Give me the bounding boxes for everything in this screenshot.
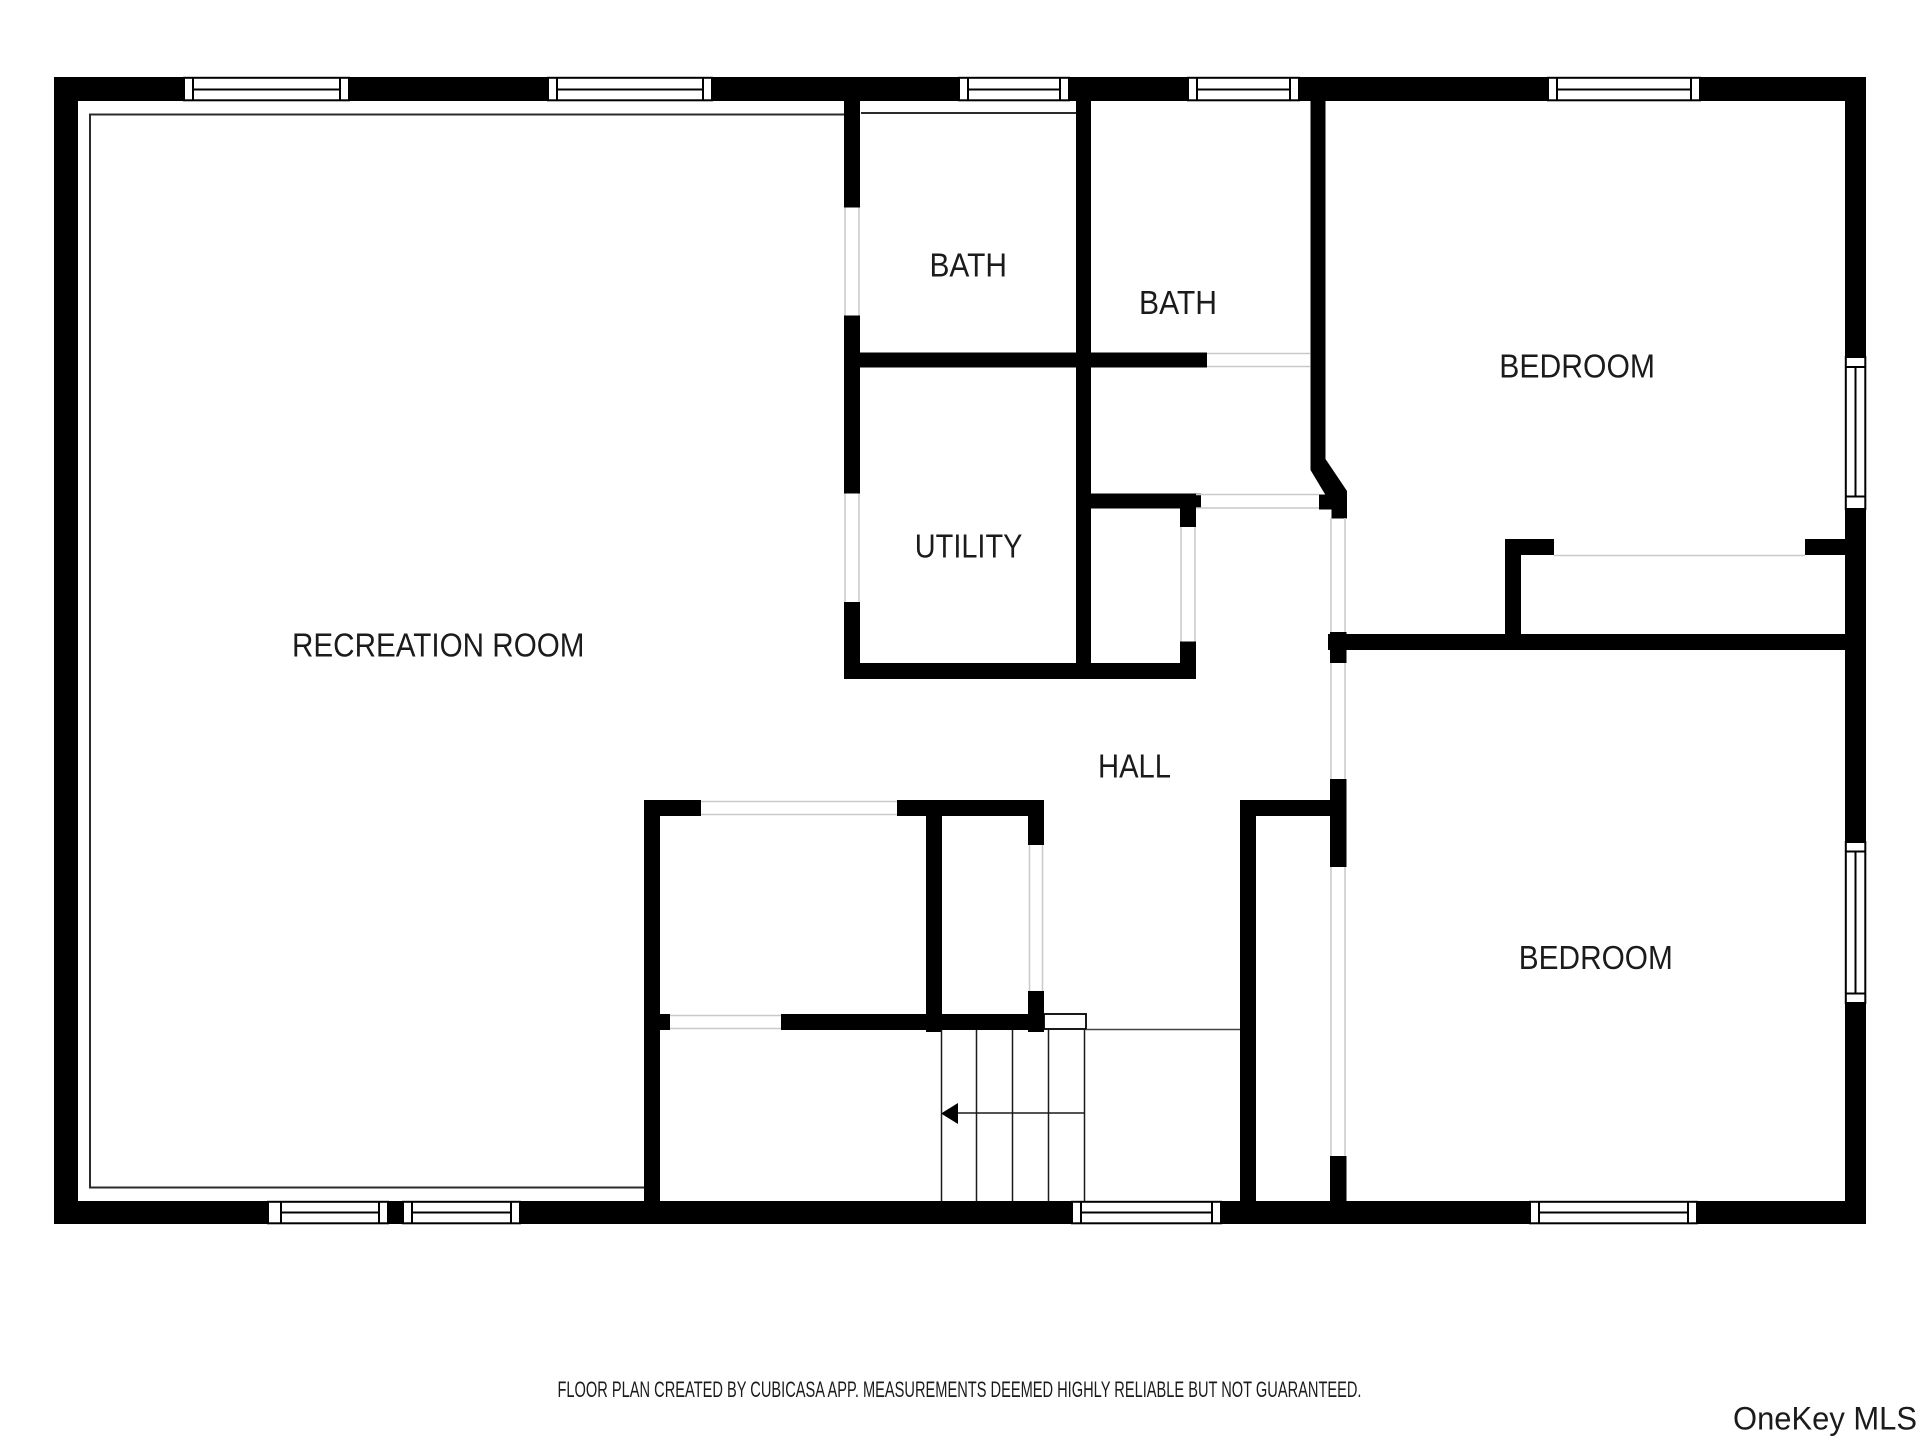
svg-text:HALL: HALL (1098, 748, 1171, 785)
svg-text:BATH: BATH (1139, 284, 1217, 321)
svg-text:FLOOR PLAN CREATED BY CUBICASA: FLOOR PLAN CREATED BY CUBICASA APP. MEAS… (558, 1377, 1362, 1402)
svg-text:RECREATION ROOM: RECREATION ROOM (292, 627, 585, 664)
svg-text:UTILITY: UTILITY (915, 528, 1023, 565)
svg-text:BATH: BATH (930, 246, 1008, 283)
svg-text:BEDROOM: BEDROOM (1519, 939, 1673, 976)
svg-text:OneKey MLS: OneKey MLS (1733, 1401, 1917, 1437)
svg-text:BEDROOM: BEDROOM (1499, 348, 1655, 385)
